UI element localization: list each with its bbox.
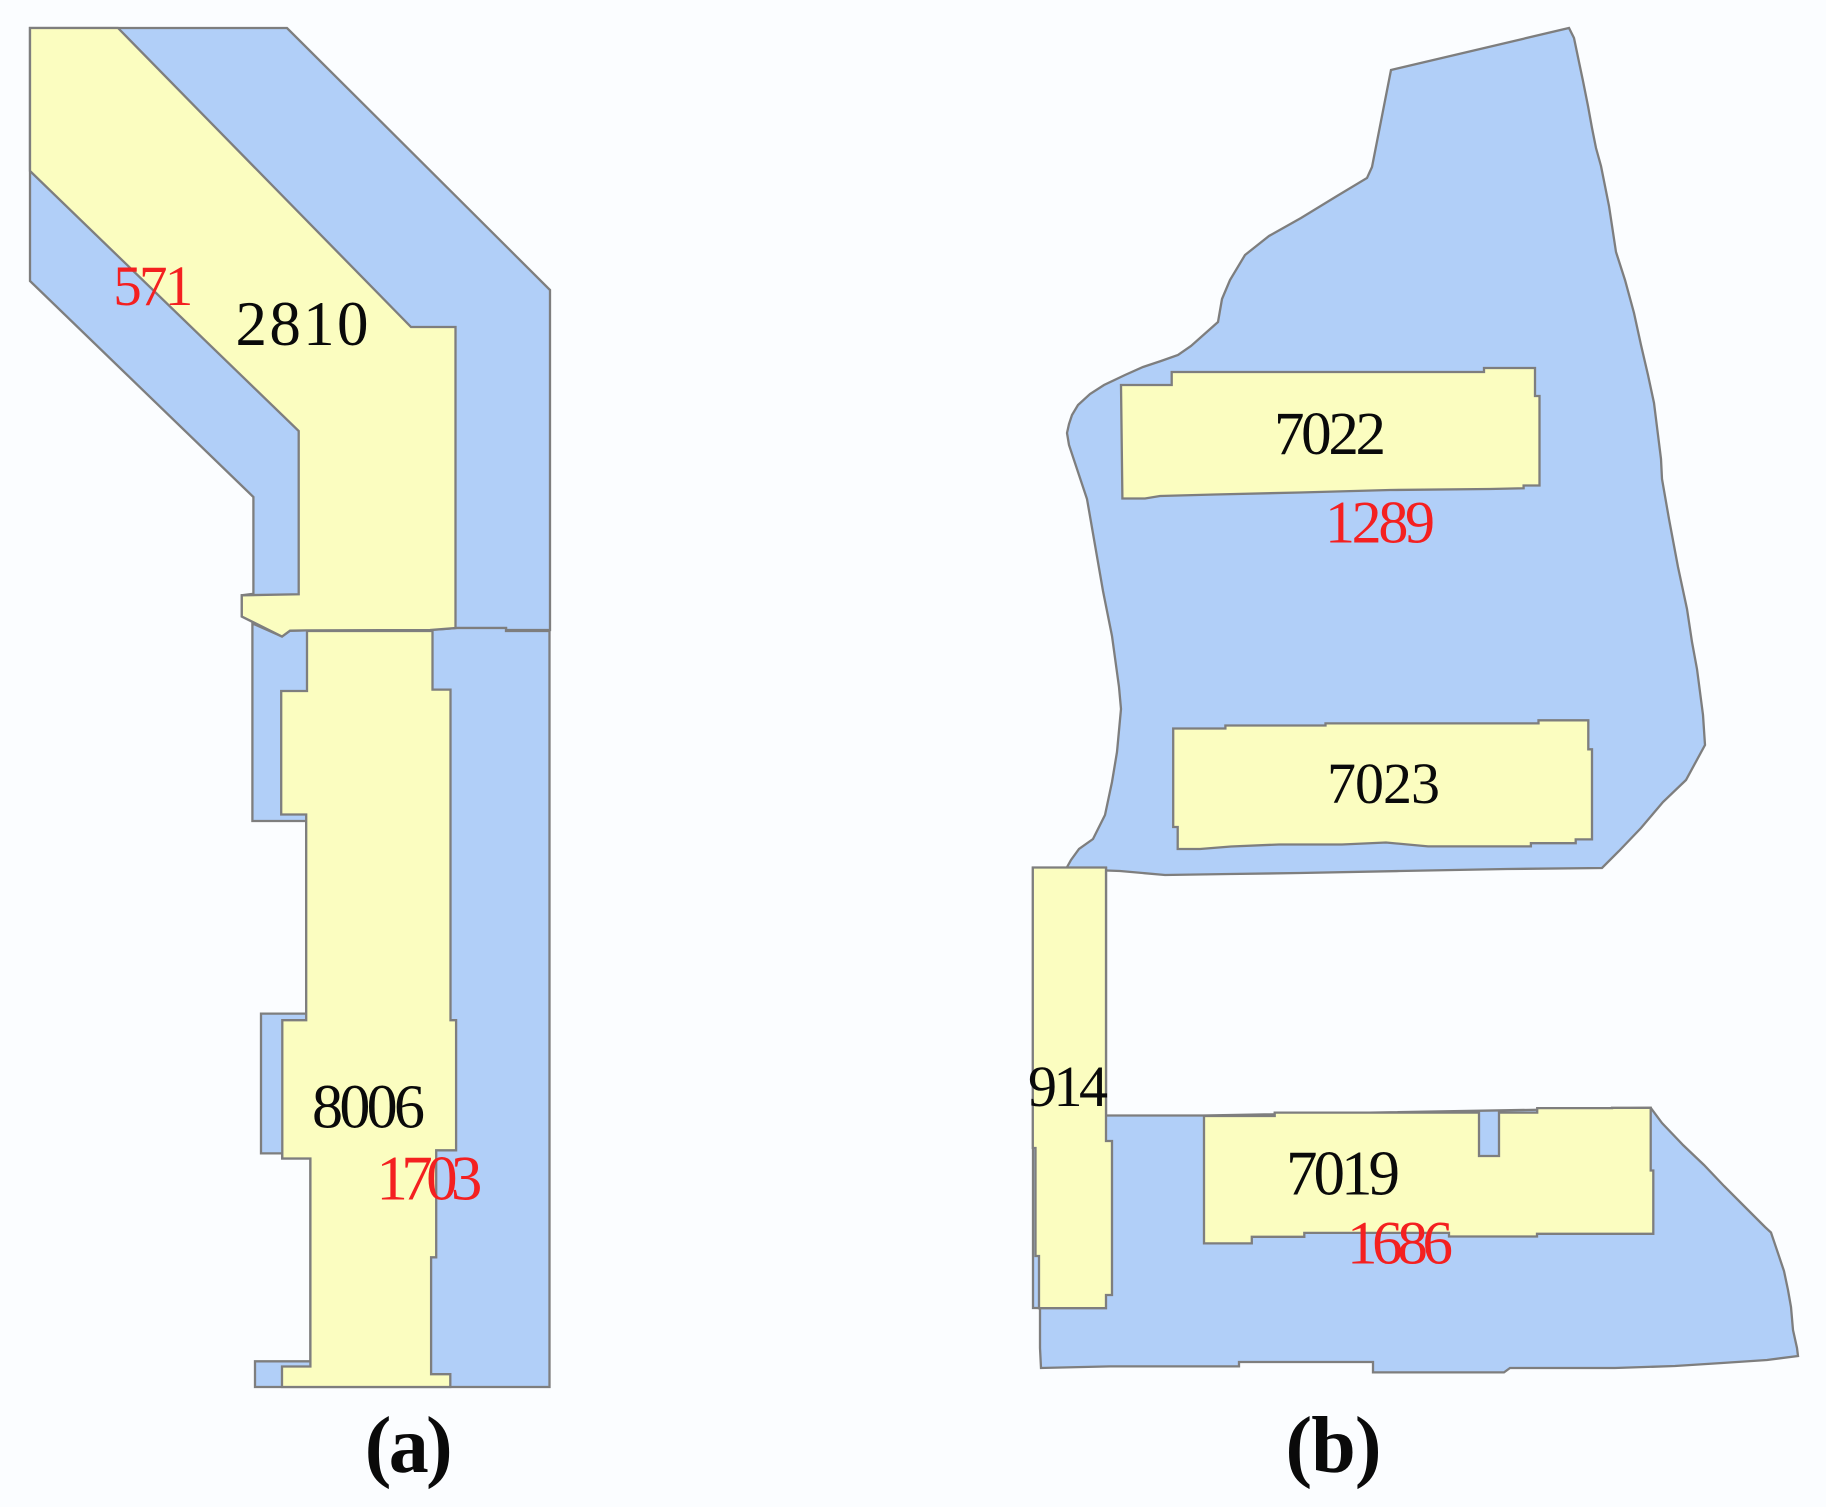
svg-text:8006: 8006	[312, 1074, 425, 1142]
svg-text:1686: 1686	[1347, 1211, 1453, 1278]
svg-text:914: 914	[1028, 1054, 1108, 1119]
svg-text:7022: 7022	[1274, 401, 1386, 468]
svg-text:7019: 7019	[1286, 1139, 1400, 1209]
svg-text:7023: 7023	[1327, 751, 1440, 816]
svg-text:(a): (a)	[365, 1402, 453, 1490]
svg-text:1703: 1703	[376, 1144, 482, 1214]
svg-text:571: 571	[113, 255, 193, 318]
svg-text:(b): (b)	[1286, 1402, 1382, 1490]
svg-text:1289: 1289	[1325, 490, 1435, 556]
